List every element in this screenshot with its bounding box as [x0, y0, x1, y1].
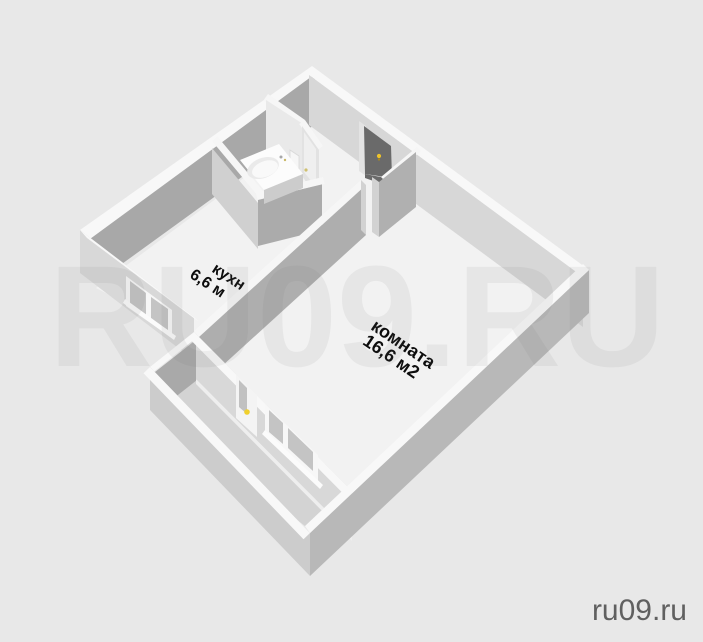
svg-text:ru09.ru: ru09.ru — [592, 594, 687, 627]
svg-text:RU09.RU: RU09.RU — [49, 236, 665, 397]
